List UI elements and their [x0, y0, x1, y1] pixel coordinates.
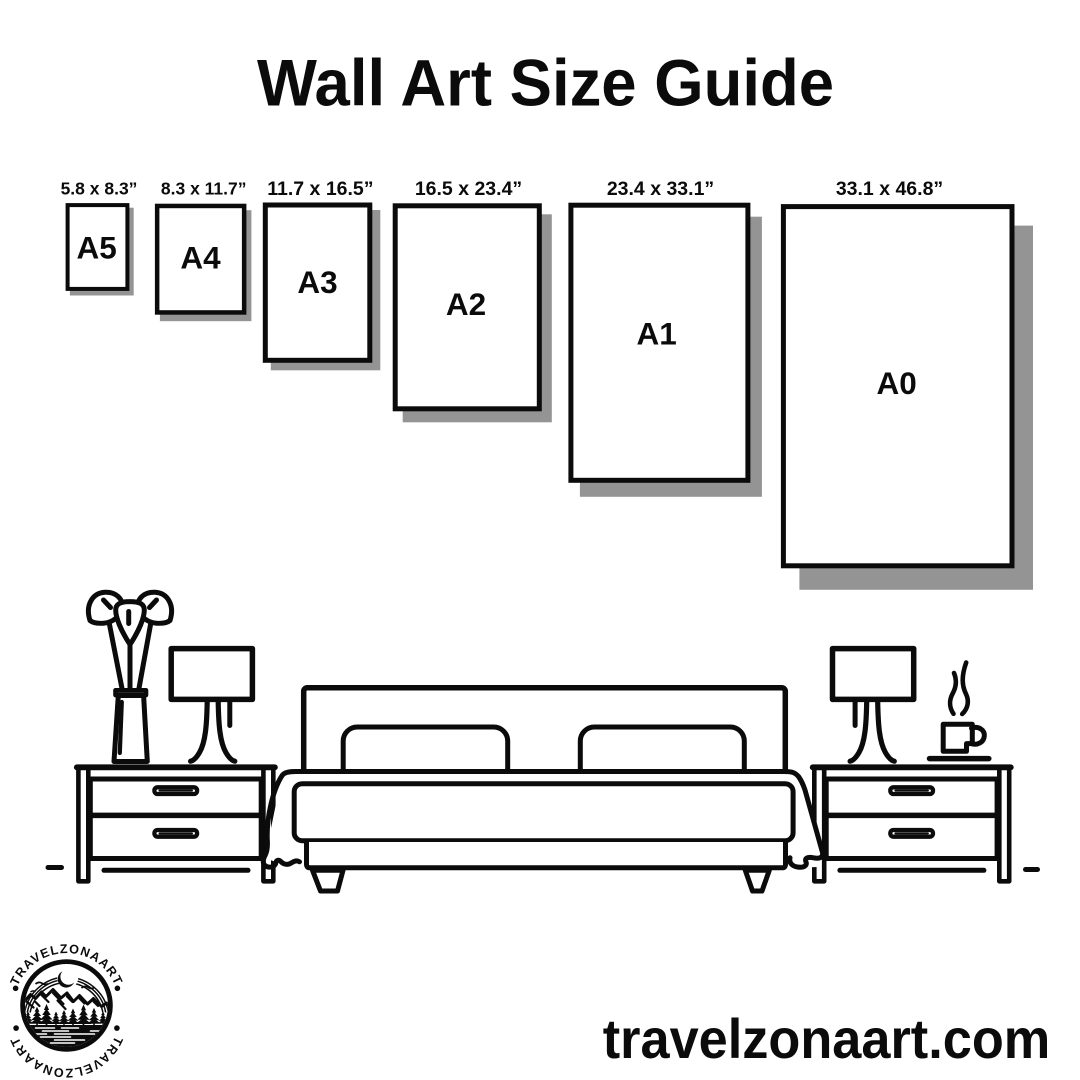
- svg-text:8.3 x 11.7”: 8.3 x 11.7”: [161, 179, 247, 199]
- svg-text:Wall Art Size Guide: Wall Art Size Guide: [257, 46, 834, 120]
- svg-text:23.4 x 33.1”: 23.4 x 33.1”: [607, 178, 714, 200]
- svg-text:11.7 x 16.5”: 11.7 x 16.5”: [267, 178, 373, 200]
- svg-text:16.5 x 23.4”: 16.5 x 23.4”: [415, 178, 522, 200]
- svg-text:A1: A1: [637, 316, 677, 352]
- svg-text:A2: A2: [446, 286, 486, 322]
- svg-text:33.1 x 46.8”: 33.1 x 46.8”: [836, 178, 943, 200]
- svg-text:A3: A3: [297, 264, 337, 300]
- svg-text:A4: A4: [180, 240, 221, 276]
- svg-text:5.8 x 8.3”: 5.8 x 8.3”: [61, 179, 138, 199]
- svg-text:A0: A0: [877, 365, 917, 401]
- svg-text:travelzonaart.com: travelzonaart.com: [603, 1007, 1051, 1070]
- svg-text:A5: A5: [77, 229, 117, 265]
